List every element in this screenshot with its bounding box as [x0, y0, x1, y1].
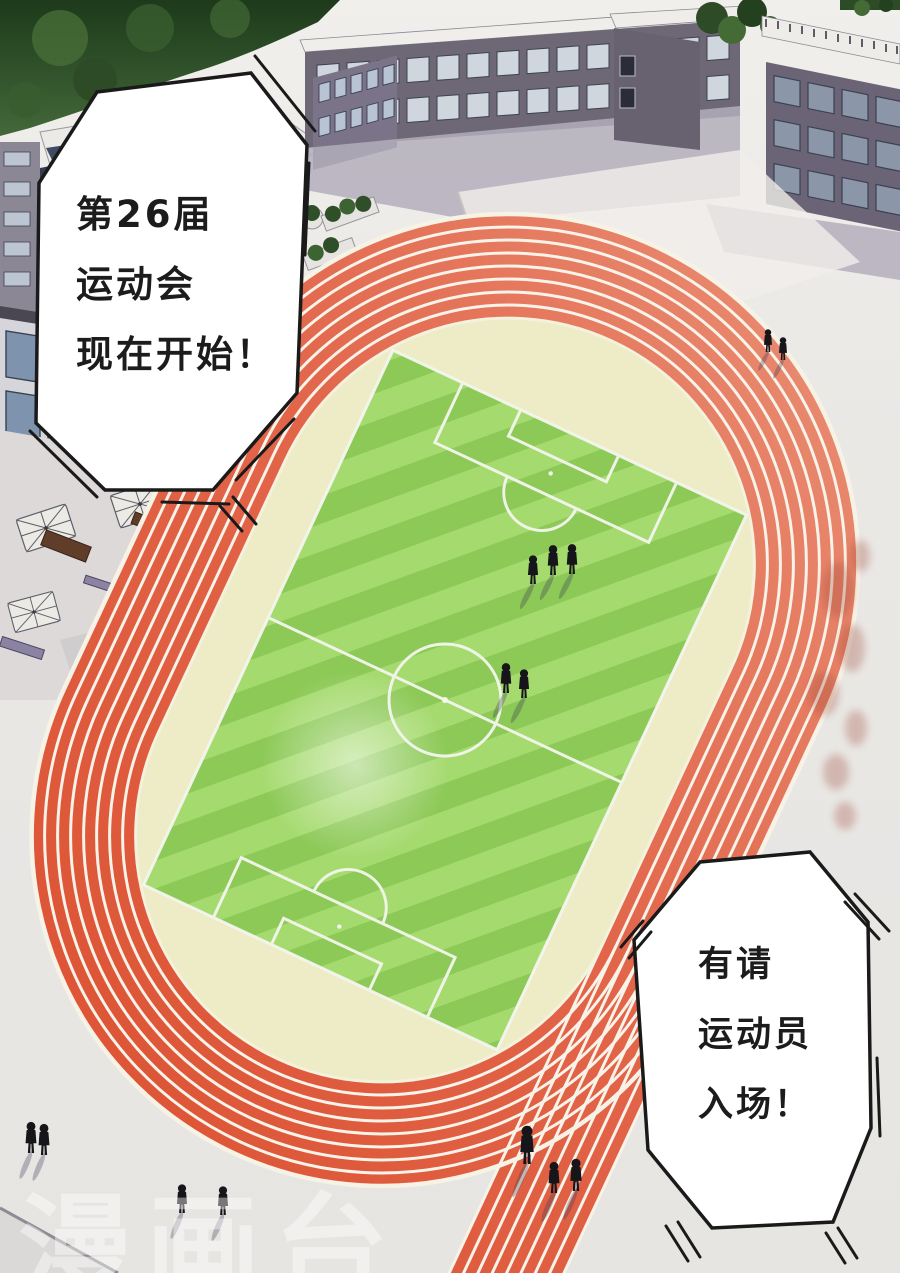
left-strip-building — [0, 142, 40, 322]
speech-bubble-opening-text: 第26届 运动会 现在开始！ — [76, 180, 276, 390]
watermark: 漫画台 — [18, 1156, 402, 1273]
bubble-line: 入场！ — [698, 1070, 812, 1140]
bubble-line: 运动会 — [76, 250, 276, 320]
bubble-line: 有请 — [698, 930, 812, 1000]
comic-page: 漫画台 第26届 运动会 现在开始！ 有请 运动员 入场！ — [0, 0, 900, 1273]
bubble-line: 运动员 — [698, 1000, 812, 1070]
bubble-line: 第26届 — [76, 180, 276, 250]
bubble-line: 现在开始！ — [76, 320, 276, 390]
speech-bubble-entrance-text: 有请 运动员 入场！ — [698, 930, 812, 1140]
